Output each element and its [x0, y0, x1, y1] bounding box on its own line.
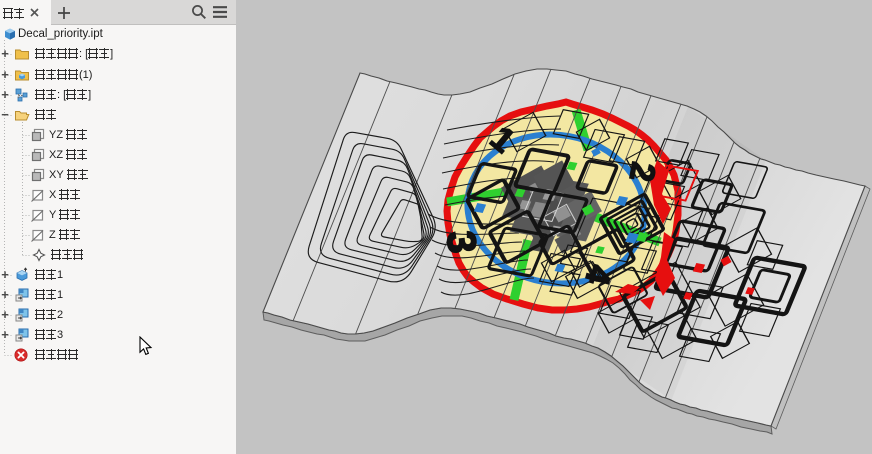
svg-text:3: 3: [438, 229, 484, 255]
